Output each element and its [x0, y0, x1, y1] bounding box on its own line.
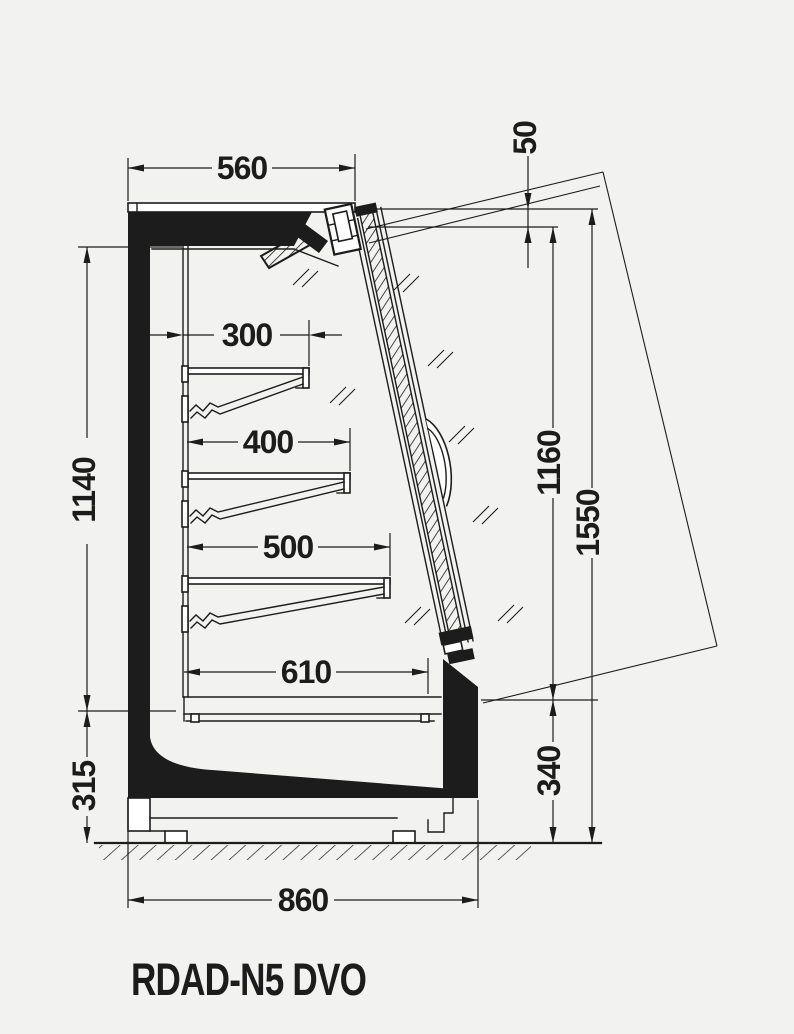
dim-50-label: 50: [507, 121, 543, 155]
model-label: RDAD-N5 DVO: [131, 954, 366, 1005]
top-slab: [137, 212, 312, 246]
dim-500-label: 500: [263, 529, 314, 565]
dim-560-label: 560: [217, 150, 268, 186]
top-trim: [128, 203, 355, 212]
dim-1140-label: 1140: [66, 457, 102, 523]
technical-drawing-rdad-n5-dvo: 560 50 1140 315: [0, 0, 794, 1034]
dim-340-label: 340: [531, 746, 567, 797]
paper-background: [0, 0, 794, 1034]
dim-1550-label: 1550: [570, 489, 606, 556]
dim-400-label: 400: [243, 424, 294, 460]
dim-300-label: 300: [222, 317, 273, 353]
dim-610-label: 610: [281, 654, 332, 690]
dim-315-label: 315: [66, 761, 102, 812]
dim-1160-label: 1160: [531, 430, 567, 496]
ground: [95, 843, 601, 860]
dim-860-label: 860: [278, 882, 329, 918]
